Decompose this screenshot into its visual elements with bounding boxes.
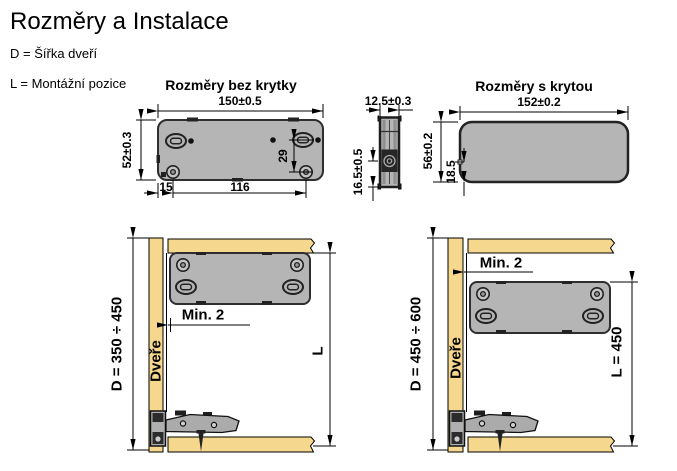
- door-label-small: Dveře: [149, 340, 164, 382]
- mounting-position-small: L: [311, 346, 326, 355]
- min-gap-small: Min. 2: [182, 308, 225, 323]
- min-gap-large: Min. 2: [480, 256, 523, 271]
- door-range-large: D = 450 ÷ 600: [409, 297, 424, 392]
- view-side-drawing: [366, 105, 413, 201]
- door-range-small: D = 350 ÷ 450: [110, 297, 125, 392]
- dim-hole-spacing: 116: [230, 181, 249, 193]
- section-title-with-cover: Rozměry s krytou: [475, 79, 592, 93]
- dim-bottom-offset: 18.5: [445, 160, 457, 183]
- view-with-cover-drawing: [433, 106, 628, 196]
- dim-width-without-cover: 150±0.5: [218, 95, 261, 107]
- dim-side-width: 12.5±0.3: [365, 95, 412, 107]
- dim-width-with-cover: 152±0.2: [517, 96, 560, 108]
- dim-height-with-cover: 56±0.2: [422, 133, 434, 170]
- legend-d-definition: D = Šířka dveří: [10, 46, 97, 61]
- door-label-large: Dveře: [449, 337, 464, 379]
- legend-l-definition: L = Montážní pozice: [10, 76, 126, 91]
- technical-drawing: [0, 0, 677, 471]
- dim-slot-to-hole: 29: [277, 149, 289, 162]
- catalog-page: Rozměry a Instalace D = Šířka dveří L = …: [0, 0, 677, 471]
- dim-screw-from-bottom: 16.5±0.5: [352, 149, 364, 196]
- page-title: Rozměry a Instalace: [10, 8, 229, 36]
- section-title-without-cover: Rozměry bez krytky: [165, 78, 297, 92]
- mounting-position-large: L = 450: [610, 326, 625, 377]
- dim-edge-to-hole: 15: [159, 181, 172, 193]
- dim-height-without-cover: 52±0.3: [121, 132, 133, 169]
